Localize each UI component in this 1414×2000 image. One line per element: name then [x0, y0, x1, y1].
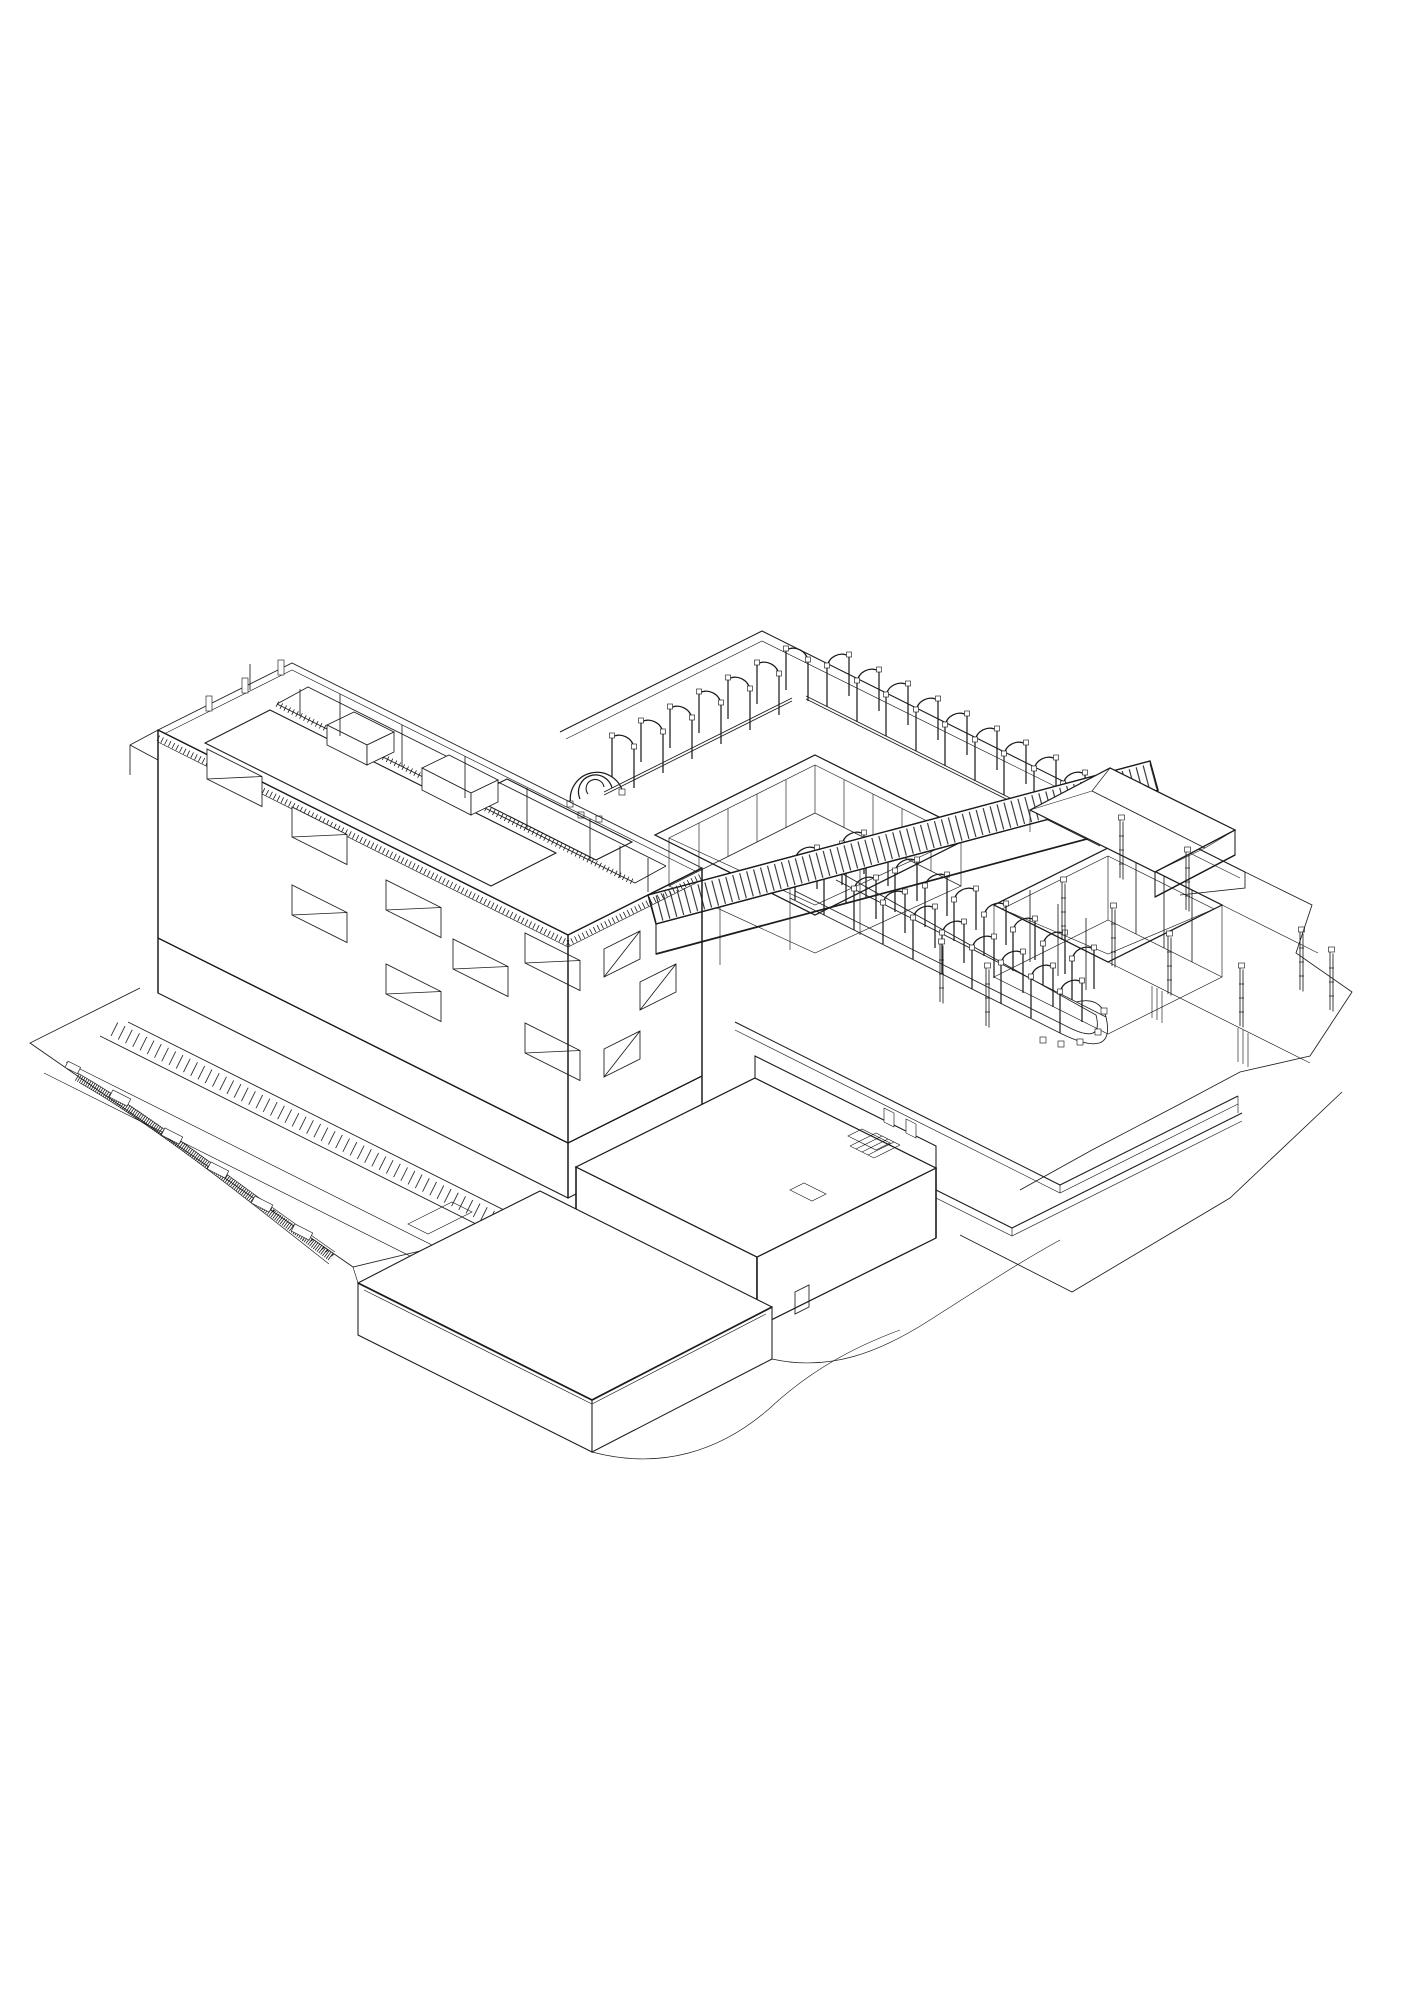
ramp-top-landing — [65, 1061, 81, 1074]
plaza — [30, 988, 420, 1283]
west-return-wall — [130, 730, 158, 775]
tower-block — [130, 660, 702, 1198]
facade-sw — [158, 730, 580, 1198]
walk-notch — [408, 1202, 472, 1234]
drawing-page — [0, 0, 1414, 2000]
roof-bulkhead-box-2 — [327, 712, 394, 765]
balconies-sw — [207, 749, 580, 1081]
ramp-stair — [65, 1061, 335, 1264]
balconies-se — [604, 931, 676, 1077]
roof-bulkhead-box — [422, 755, 498, 815]
hanging-slats — [1152, 986, 1248, 1067]
axonometric-line-drawing — [0, 0, 1414, 2000]
